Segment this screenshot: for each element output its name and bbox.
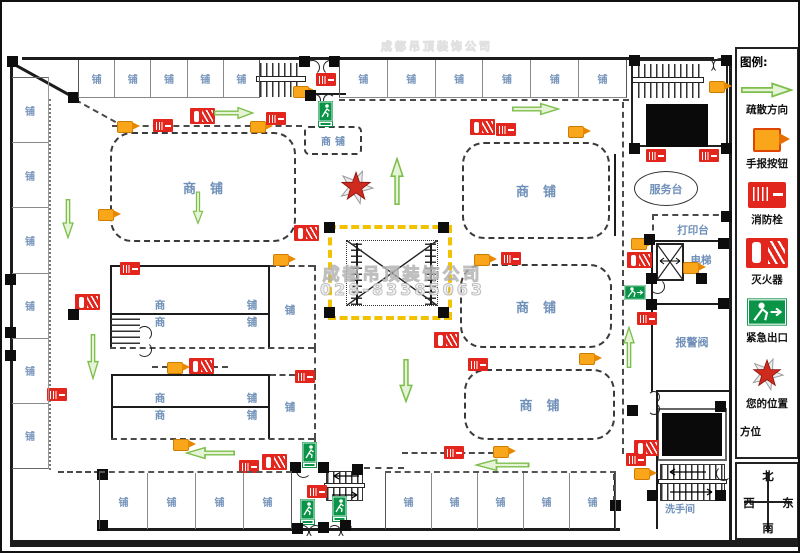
shop-cell-label: 铺 xyxy=(236,71,246,86)
evacuation-route xyxy=(112,125,302,127)
emergency-exit-icon xyxy=(747,298,787,326)
shop-cell-label: 铺 xyxy=(588,494,598,509)
shop-cell: 铺 xyxy=(431,473,477,529)
shop-block-label: 铺 xyxy=(247,298,258,313)
shop-cell: 铺 xyxy=(100,473,147,529)
structural-column xyxy=(715,401,726,412)
shop-cell: 铺 xyxy=(243,473,291,529)
shop-cell-label: 铺 xyxy=(404,494,414,509)
structural-column xyxy=(292,523,303,534)
fire-extinguisher-icon xyxy=(470,119,495,135)
fire-hydrant-icon xyxy=(637,312,657,325)
shop-cell-label: 铺 xyxy=(263,494,273,509)
fire-extinguisher-icon xyxy=(190,108,215,124)
service-desk-label: 服务台 xyxy=(650,181,683,197)
evacuation-arrow-icon xyxy=(87,334,99,380)
fire-hydrant-icon xyxy=(501,252,521,265)
fire-extinguisher-icon xyxy=(434,332,459,348)
shop-cell-label: 铺 xyxy=(200,71,210,86)
wall xyxy=(268,374,270,439)
fire-extinguisher-icon xyxy=(627,252,652,268)
fire-extinguisher-icon xyxy=(262,454,287,470)
shop-cell-label: 铺 xyxy=(358,71,368,86)
shop-cell: 铺 xyxy=(387,60,435,97)
shop-cell: 铺 xyxy=(530,60,578,97)
shop-cell: 铺 xyxy=(114,60,150,97)
structural-column xyxy=(7,56,18,67)
alarm-button-icon xyxy=(579,353,595,365)
structural-column xyxy=(646,273,657,284)
stair-direction-arrow xyxy=(668,488,718,496)
legend-item-label: 您的位置 xyxy=(746,396,788,411)
watermark-text: 028-83385063 xyxy=(305,280,500,299)
shop-row: 铺铺铺铺铺铺 xyxy=(339,60,627,98)
wall-dashed xyxy=(314,374,316,439)
structural-column xyxy=(646,299,657,310)
compass-west: 西 xyxy=(743,495,755,511)
shop-cell: 铺 xyxy=(435,60,483,97)
shop-block-label: 商 xyxy=(155,298,166,313)
structural-column xyxy=(718,238,729,249)
structural-column xyxy=(299,56,310,67)
shop-row: 铺铺铺铺铺铺 xyxy=(12,77,49,469)
evacuation-arrow-icon xyxy=(474,458,529,471)
compass-north: 北 xyxy=(762,468,774,484)
alarm-button-icon xyxy=(634,468,650,480)
wall xyxy=(268,265,270,349)
evacuation-route xyxy=(364,467,404,469)
structural-column xyxy=(324,307,335,318)
fire-hydrant-icon xyxy=(153,119,173,132)
compass-south: 南 xyxy=(762,520,774,536)
structural-column xyxy=(324,222,335,233)
restroom-label: 洗手间 xyxy=(665,501,695,516)
shop-block-label: 铺 xyxy=(247,315,258,330)
shop-cell: 铺 xyxy=(477,473,523,529)
alarm-button-icon xyxy=(250,121,266,133)
fire-hydrant-icon xyxy=(316,73,336,86)
evacuation-arrow-icon xyxy=(741,82,793,98)
alarm-button-icon xyxy=(98,209,114,221)
shop-cell: 铺 xyxy=(12,78,48,142)
shop-cell-label: 铺 xyxy=(25,168,35,183)
alarm-button-icon xyxy=(753,128,781,152)
structural-column xyxy=(305,90,316,101)
legend-item-label: 手报按钮 xyxy=(746,156,788,171)
structural-column xyxy=(438,222,449,233)
fire-hydrant-icon xyxy=(307,485,327,498)
shop-block-label: 商 xyxy=(155,408,166,423)
shop-cell: 铺 xyxy=(482,60,530,97)
door-swing xyxy=(648,403,660,415)
evacuation-arrow-icon xyxy=(192,191,203,224)
structural-column xyxy=(696,273,707,284)
door-swing xyxy=(648,391,660,403)
fire-hydrant-icon xyxy=(748,182,786,208)
structural-column xyxy=(715,490,726,501)
alarm-button-icon xyxy=(117,121,133,133)
shop-cell-label: 铺 xyxy=(454,71,464,86)
shop-block-label: 铺 xyxy=(285,400,296,415)
fire-hydrant-icon xyxy=(496,123,516,136)
shop-cell-label: 铺 xyxy=(92,71,102,86)
alarm-valve-label: 报警阀 xyxy=(676,334,709,350)
shop-cell: 铺 xyxy=(12,142,48,207)
fire-extinguisher-icon xyxy=(294,225,319,241)
alarm-button-icon xyxy=(167,362,183,374)
evacuation-arrow-icon xyxy=(214,106,254,119)
shop-cell: 铺 xyxy=(340,60,387,97)
evacuation-arrow-icon xyxy=(512,102,560,115)
shop-cell: 铺 xyxy=(187,60,223,97)
elevator-door-arrows xyxy=(658,257,682,265)
legend-panel: 图例: 疏散方向 手报按钮 消防栓 灭火器 紧急出口 您的位置 方位 xyxy=(735,47,799,459)
structural-column xyxy=(438,307,449,318)
fire-extinguisher-icon xyxy=(634,440,659,456)
shop-cell-label: 铺 xyxy=(25,428,35,443)
stair-rail xyxy=(256,76,306,82)
fire-extinguisher-icon xyxy=(75,294,100,310)
shop-cell-label: 铺 xyxy=(215,494,225,509)
compass-east: 东 xyxy=(782,495,794,511)
shop-cell: 铺 xyxy=(386,473,431,529)
shop-row: 铺铺铺铺铺 xyxy=(385,471,616,529)
shop-row: 铺铺铺铺铺 xyxy=(78,60,260,98)
shop-cell-label: 铺 xyxy=(550,71,560,86)
structural-column xyxy=(340,520,351,531)
shop-cell-label: 铺 xyxy=(542,494,552,509)
legend-item-label: 方位 xyxy=(740,424,761,439)
wall xyxy=(111,374,269,376)
structural-column xyxy=(718,298,729,309)
fire-hydrant-icon xyxy=(47,388,67,401)
door-swing xyxy=(137,342,152,357)
fire-hydrant-icon xyxy=(468,358,488,371)
evacuation-arrow-icon xyxy=(62,199,74,239)
shop-zone-small: 商铺 xyxy=(304,126,362,155)
wall xyxy=(10,540,799,547)
evacuation-arrow-icon xyxy=(399,359,413,403)
shop-cell: 铺 xyxy=(12,273,48,338)
shop-cell-label: 铺 xyxy=(119,494,129,509)
structural-column xyxy=(352,464,363,475)
shop-cell-label: 铺 xyxy=(25,233,35,248)
fire-hydrant-icon xyxy=(295,370,315,383)
legend-item-label: 消防栓 xyxy=(751,212,783,227)
structural-column xyxy=(629,55,640,66)
evacuation-route xyxy=(75,99,116,123)
shop-zone-label: 商铺 xyxy=(502,181,570,200)
evacuation-route xyxy=(622,102,624,454)
shop-cell: 铺 xyxy=(79,60,114,97)
shop-cell-label: 铺 xyxy=(25,103,35,118)
shop-cell: 铺 xyxy=(523,473,569,529)
shop-block-label: 商 xyxy=(155,391,166,406)
compass: 北 西 东 南 xyxy=(735,462,799,540)
shop-zone: 商铺 xyxy=(464,369,615,440)
fire-hydrant-icon xyxy=(699,149,719,162)
your-location-star-icon xyxy=(749,356,785,392)
fire-extinguisher-icon xyxy=(746,238,788,268)
structural-column xyxy=(318,522,329,533)
stair-direction-arrow xyxy=(664,468,708,476)
fire-extinguisher-icon xyxy=(189,358,214,374)
alarm-button-icon xyxy=(568,126,584,138)
shop-block-label: 铺 xyxy=(247,408,258,423)
shop-zone-label: 商铺 xyxy=(317,133,349,148)
shop-zone: 商铺 xyxy=(110,132,296,242)
fire-hydrant-icon xyxy=(120,262,140,275)
fire-hydrant-icon xyxy=(266,112,286,125)
shop-block-label: 铺 xyxy=(285,303,296,318)
stair-rail xyxy=(658,479,727,484)
legend-item-label: 疏散方向 xyxy=(746,102,788,117)
door-swing xyxy=(716,466,731,481)
alarm-button-icon xyxy=(474,254,490,266)
shop-cell-label: 铺 xyxy=(25,363,35,378)
structural-column xyxy=(629,143,640,154)
evacuation-arrow-icon xyxy=(623,326,635,368)
fire-hydrant-icon xyxy=(444,446,464,459)
shop-cell: 铺 xyxy=(569,473,615,529)
stair-rail xyxy=(324,483,365,488)
shop-cell: 铺 xyxy=(147,473,195,529)
structural-column xyxy=(318,462,329,473)
structural-column xyxy=(721,143,732,154)
shop-row: 铺铺铺铺 xyxy=(99,471,292,529)
evacuation-route xyxy=(58,471,100,473)
evacuation-arrow-icon xyxy=(390,157,404,205)
wall xyxy=(656,390,729,392)
shop-cell-label: 铺 xyxy=(25,298,35,313)
shop-cell: 铺 xyxy=(578,60,626,97)
legend-title: 图例: xyxy=(740,54,768,70)
structural-column xyxy=(721,211,732,222)
shop-block-label: 商 xyxy=(155,315,166,330)
structural-column xyxy=(721,55,732,66)
shop-cell: 铺 xyxy=(195,473,243,529)
shop-zone-label: 商铺 xyxy=(502,297,570,316)
print-desk-label: 打印台 xyxy=(677,223,709,238)
print-desk-outline xyxy=(652,214,729,216)
evacuation-route xyxy=(339,99,629,101)
evacuation-arrow-icon xyxy=(185,446,235,459)
door-swing xyxy=(699,58,714,73)
shop-cell: 铺 xyxy=(12,207,48,272)
shop-cell-label: 铺 xyxy=(167,494,177,509)
shop-cell: 铺 xyxy=(12,338,48,403)
wall-dashed xyxy=(111,438,314,440)
structural-column xyxy=(627,405,638,416)
elevator-shaft xyxy=(646,104,708,147)
elevator-shaft xyxy=(662,413,722,456)
shop-cell-label: 铺 xyxy=(496,494,506,509)
structural-column xyxy=(647,490,658,501)
your-location-star-icon xyxy=(337,168,375,210)
shop-cell: 铺 xyxy=(150,60,186,97)
wall xyxy=(111,406,269,408)
shop-cell: 铺 xyxy=(223,60,259,97)
shop-cell-label: 铺 xyxy=(406,71,416,86)
door-swing xyxy=(137,326,152,341)
emergency-exit-icon xyxy=(302,442,317,472)
legend-item-label: 紧急出口 xyxy=(746,330,788,345)
fire-hydrant-icon xyxy=(646,149,666,162)
structural-column xyxy=(644,234,655,245)
shop-zone-label: 商铺 xyxy=(505,395,573,414)
alarm-button-icon xyxy=(493,446,509,458)
shop-cell-label: 铺 xyxy=(128,71,138,86)
watermark-text: 成都吊顶装饰公司 xyxy=(362,38,512,54)
staircase xyxy=(111,318,140,344)
shop-cell-label: 铺 xyxy=(450,494,460,509)
shop-cell-label: 铺 xyxy=(164,71,174,86)
evacuation-plan-page: 商铺 商铺 商铺 商铺 商铺 商 商 铺 铺 铺 商 商 铺 铺 铺 xyxy=(0,0,800,553)
alarm-button-icon xyxy=(709,81,725,93)
evacuation-route xyxy=(49,99,51,470)
structural-column xyxy=(68,309,79,320)
shop-block-label: 铺 xyxy=(247,391,258,406)
alarm-button-icon xyxy=(273,254,289,266)
wall xyxy=(614,154,616,236)
shop-cell-label: 铺 xyxy=(502,71,512,86)
shop-zone: 商铺 xyxy=(462,142,610,239)
shop-cell: 铺 xyxy=(12,403,48,468)
emergency-exit-icon xyxy=(624,285,646,304)
shop-cell-label: 铺 xyxy=(598,71,608,86)
legend-item-label: 灭火器 xyxy=(751,272,783,287)
emergency-exit-icon xyxy=(318,101,333,131)
